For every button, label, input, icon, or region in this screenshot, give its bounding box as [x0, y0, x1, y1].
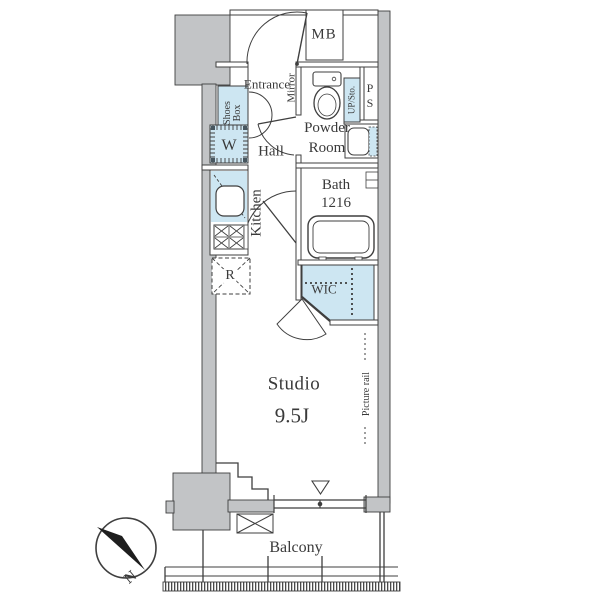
label-shoes-box: Shoes Box	[223, 101, 243, 125]
label-picture-rail: Picture rail	[362, 372, 372, 416]
bathtub-fixture	[308, 216, 374, 260]
wall-entrance-top-left	[216, 62, 248, 67]
kitchen-sink	[216, 186, 244, 216]
label-powder-room: Powder Room	[304, 118, 350, 158]
wall-top-a	[230, 10, 308, 15]
wall-powder-left-lower	[296, 155, 301, 300]
label-wic: WIC	[311, 283, 336, 296]
wic-area	[277, 265, 374, 340]
compass	[96, 518, 156, 578]
label-refrigerator: R	[223, 269, 236, 283]
stove-icon	[214, 225, 248, 249]
shoes-box-door-arc-top	[249, 92, 272, 115]
floor-plan-drawing	[0, 0, 600, 599]
powder-door-leaf	[258, 117, 296, 124]
floor-plan: MB Entrance Mirror Shoes Box Powder Room…	[0, 0, 600, 599]
label-kitchen: Kitchen	[250, 189, 265, 236]
column-top-left	[175, 15, 230, 85]
balcony-edge-hatch	[163, 582, 400, 591]
wall-powder-bath	[296, 163, 378, 168]
kitchen-counter	[210, 170, 248, 255]
entrance-door-hinge	[296, 63, 299, 66]
wall-bottom-right-block	[364, 497, 390, 512]
entry-triangle-marker	[312, 481, 329, 494]
shoes-box-door-arc-bottom	[249, 115, 272, 138]
wall-right	[378, 11, 390, 503]
wall-bath-wic	[298, 260, 378, 265]
window	[274, 495, 366, 513]
wall-top-b	[341, 10, 378, 15]
label-balcony: Balcony	[269, 540, 322, 556]
wall-ps-left	[360, 67, 364, 120]
wall-wic-bottom	[330, 320, 378, 325]
label-mirror: Mirror	[287, 73, 298, 102]
label-up-storage: UP/Sto.	[348, 86, 357, 114]
bath-shelf	[366, 172, 378, 188]
label-entrance: Entrance	[244, 78, 290, 91]
label-bath: Bath 1216	[321, 176, 351, 212]
label-hall: Hall	[258, 145, 284, 160]
label-studio-size: 9.5J	[275, 406, 309, 427]
studio-door-leaf	[263, 201, 296, 243]
label-meter-box: MB	[311, 28, 336, 43]
toilet-fixture	[313, 72, 344, 119]
wall-entrance-top-right	[296, 62, 378, 67]
ac-unit-box	[237, 514, 273, 533]
label-washer: W	[221, 138, 236, 154]
label-studio: Studio	[268, 375, 321, 394]
label-pipe-space: P S	[367, 81, 374, 111]
wall-hall-kitchen	[202, 165, 248, 170]
wall-tab-left	[166, 501, 174, 513]
wall-window-left-segment	[228, 500, 274, 512]
column-bottom-left	[173, 473, 230, 530]
